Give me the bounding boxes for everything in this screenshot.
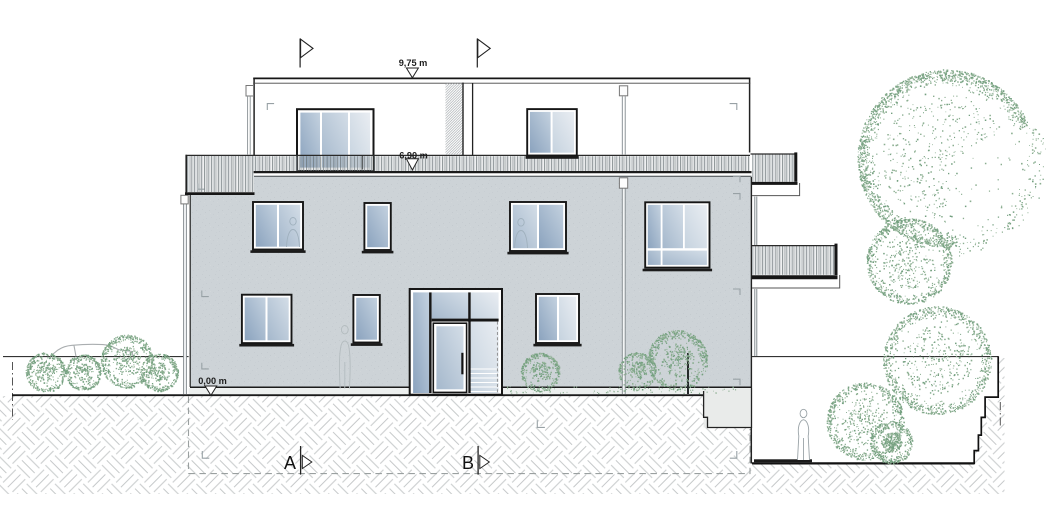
svg-text:B: B	[462, 453, 474, 473]
svg-text:A: A	[284, 453, 296, 473]
svg-text:0,00 m: 0,00 m	[198, 376, 227, 386]
svg-text:9,75 m: 9,75 m	[399, 58, 428, 68]
